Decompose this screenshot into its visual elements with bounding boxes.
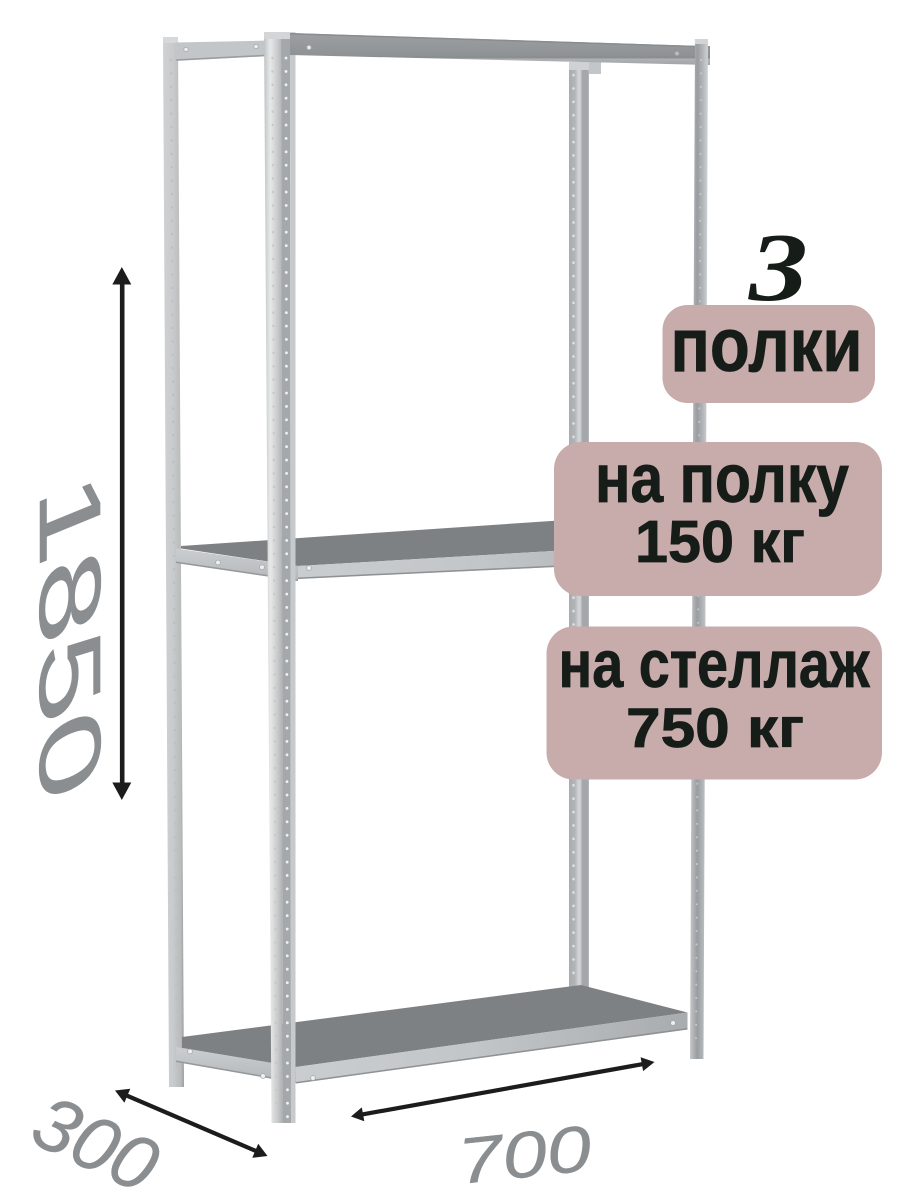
svg-text:150 кг: 150 кг <box>635 509 805 575</box>
svg-text:на стеллаж: на стеллаж <box>559 627 871 702</box>
svg-text:700: 700 <box>454 1112 594 1198</box>
svg-text:на полку: на полку <box>595 440 849 517</box>
svg-text:полки: полки <box>671 303 863 388</box>
svg-text:750 кг: 750 кг <box>626 696 804 759</box>
